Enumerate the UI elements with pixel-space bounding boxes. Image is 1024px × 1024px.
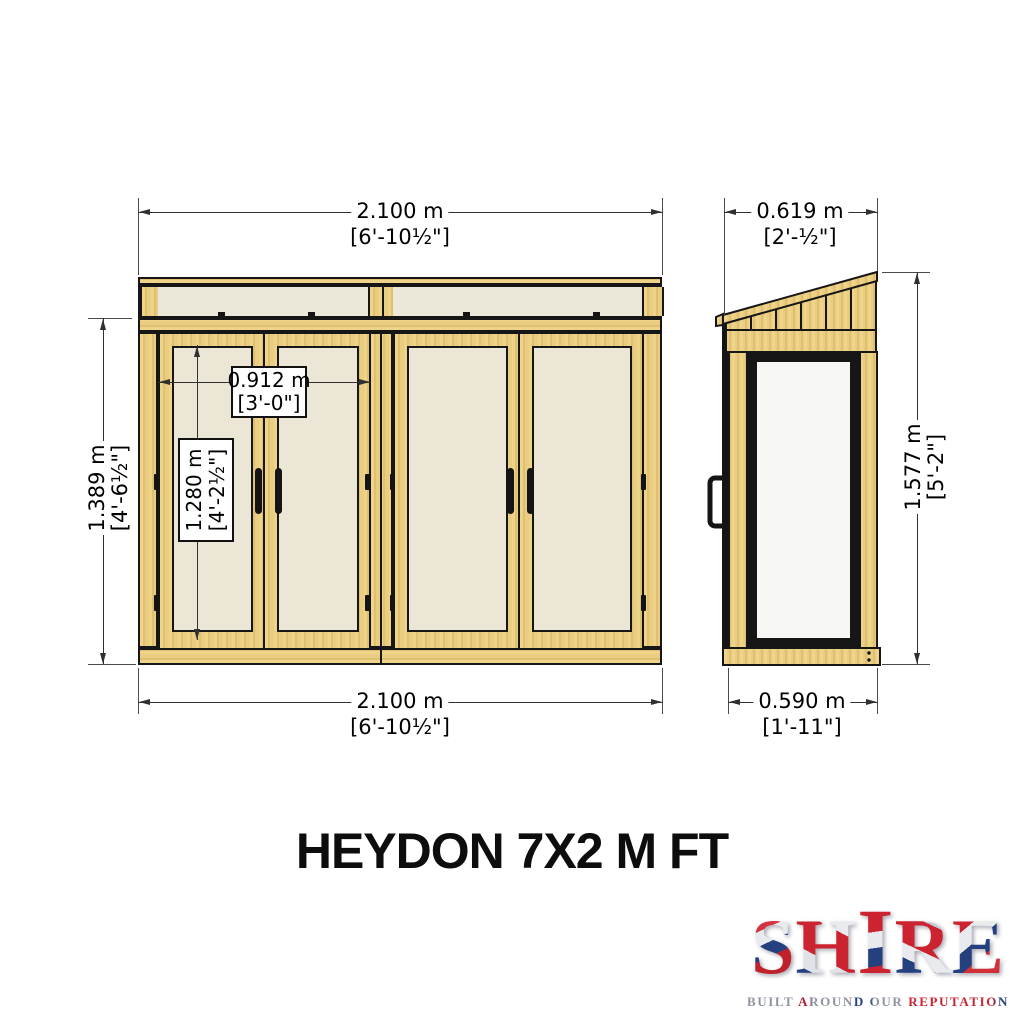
- side-glazing: [757, 362, 850, 638]
- dim-front-height-label: 1.389 m [4'-6½"]: [86, 403, 132, 573]
- drawing-canvas: 2.100 m [6'-10½"] 0.619 m [2'-½"] 1.389 …: [0, 0, 1024, 1024]
- dim-arrow: [651, 699, 662, 705]
- glazing-clip: [308, 312, 315, 316]
- logo-letter: R: [895, 903, 952, 990]
- door-3: [393, 332, 522, 652]
- dim-arrow: [651, 209, 662, 215]
- dim-extension-line: [662, 668, 663, 714]
- door-hinge: [154, 595, 159, 611]
- side-front-stile: [729, 322, 747, 648]
- glazing-clip: [463, 312, 470, 316]
- dim-front-height-imperial: [4'-6½"]: [109, 445, 132, 531]
- product-title: HEYDON 7X2 M FT: [0, 822, 1024, 880]
- door-4-glazing: [532, 346, 632, 632]
- logo-letter: H: [795, 903, 857, 990]
- dim-arrow: [729, 699, 740, 705]
- door-hinge: [641, 595, 646, 611]
- dim-extension-line: [88, 318, 132, 319]
- dim-arrow: [100, 653, 106, 664]
- dim-door-height-imperial: [4'-2½"]: [206, 449, 229, 531]
- dim-side-depth-top-metric: 0.619 m: [751, 200, 848, 223]
- dim-front-width-bottom-metric: 2.100 m: [351, 690, 448, 713]
- door-1-handle: [255, 468, 262, 514]
- post-seam: [382, 287, 384, 316]
- dim-front-width-top-imperial: [6'-10½"]: [350, 226, 450, 249]
- dim-extension-line: [728, 668, 729, 714]
- clerestory-glazing-left: [158, 287, 368, 316]
- dim-extension-line: [724, 198, 725, 315]
- front-roof-edge: [138, 277, 662, 285]
- post-seam: [380, 334, 382, 646]
- dim-extension-line: [882, 664, 930, 665]
- side-back-stile: [860, 352, 877, 648]
- dim-arrow: [194, 629, 200, 640]
- door-2-handle: [275, 468, 282, 514]
- dim-extension-line: [662, 198, 663, 275]
- door-3-glazing: [407, 346, 508, 632]
- dim-door-height-metric: 1.280 m: [183, 448, 206, 531]
- door-hinge: [390, 595, 395, 611]
- front-clerestory-row: [138, 285, 662, 318]
- dim-side-depth-bottom-imperial: [1'-11"]: [762, 716, 841, 739]
- dim-arrow: [866, 209, 877, 215]
- dim-arrow: [139, 699, 150, 705]
- dim-door-width-imperial: [3'-0"]: [238, 392, 301, 415]
- dim-front-height-metric: 1.389 m: [86, 441, 109, 534]
- dim-extension-line: [877, 198, 878, 271]
- door-3-handle: [507, 468, 514, 514]
- dim-arrow: [359, 379, 370, 385]
- base-screw: [867, 658, 870, 661]
- dim-extension-line: [877, 668, 878, 714]
- door-hinge: [154, 474, 159, 490]
- dim-arrow: [866, 699, 877, 705]
- door-hinge: [390, 474, 395, 490]
- roof-eave-notch: [716, 314, 723, 326]
- dim-extension-line: [138, 668, 139, 714]
- door-hinge: [365, 595, 370, 611]
- door-hinge: [641, 474, 646, 490]
- dim-side-depth-top-imperial: [2'-½"]: [763, 226, 836, 249]
- dim-arrow: [100, 319, 106, 330]
- side-header-rail: [726, 330, 876, 352]
- logo-wordmark: SHIRE: [742, 896, 1014, 990]
- door-4: [518, 332, 646, 652]
- side-door-handle: [710, 478, 722, 526]
- shire-logo: SHIRE BUILT AROUND OUR REPUTATION: [742, 896, 1014, 1010]
- side-door-edge: [722, 318, 729, 648]
- dim-door-width-label: 0.912 m [3'-0"]: [231, 366, 307, 418]
- dim-side-height-label: 1.577 m [5'-2"]: [902, 382, 948, 552]
- door-hinge: [365, 474, 370, 490]
- clerestory-glazing-right: [393, 287, 642, 316]
- logo-letter: S: [751, 903, 795, 990]
- dim-arrow: [914, 653, 920, 664]
- front-transom-rail: [138, 318, 662, 332]
- base-seam: [380, 648, 382, 665]
- dim-arrow: [159, 379, 170, 385]
- logo-letter: I: [857, 891, 894, 994]
- dim-arrow: [914, 273, 920, 284]
- side-elevation: [700, 258, 920, 668]
- glazing-clip: [218, 312, 225, 316]
- dim-arrow: [139, 209, 150, 215]
- dim-door-width-metric: 0.912 m: [227, 369, 310, 392]
- dim-arrow: [725, 209, 736, 215]
- door-4-handle: [527, 468, 534, 514]
- logo-letter: E: [952, 903, 1005, 990]
- dim-front-width-top-metric: 2.100 m: [351, 200, 448, 223]
- base-screw: [867, 651, 870, 654]
- dim-side-height-metric: 1.577 m: [902, 420, 925, 513]
- dim-door-height-label: 1.280 m [4'-2½"]: [178, 438, 234, 542]
- side-base-rail: [723, 648, 880, 665]
- clerestory-post-right: [642, 287, 664, 316]
- dim-side-height-imperial: [5'-2"]: [925, 434, 948, 500]
- logo-tagline: BUILT AROUND OUR REPUTATION: [742, 994, 1014, 1010]
- dim-extension-line: [88, 664, 136, 665]
- dim-side-depth-bottom-metric: 0.590 m: [753, 690, 850, 713]
- dim-front-width-bottom-imperial: [6'-10½"]: [350, 716, 450, 739]
- glazing-clip: [593, 312, 600, 316]
- dim-arrow: [194, 346, 200, 357]
- dim-extension-line: [882, 272, 930, 273]
- front-base-rail: [138, 648, 662, 665]
